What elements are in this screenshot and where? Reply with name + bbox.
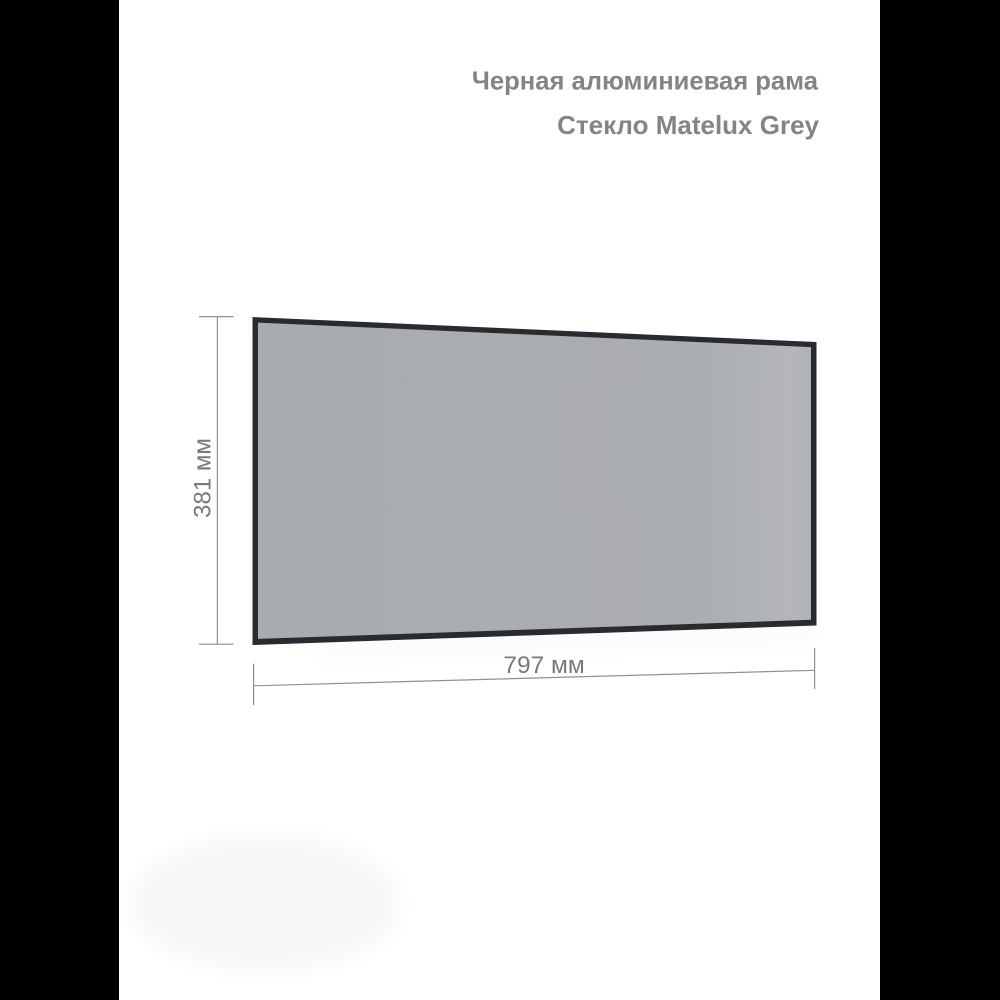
svg-text:381 мм: 381 мм — [190, 438, 217, 518]
svg-text:Черная алюминиевая рама: Черная алюминиевая рама — [472, 68, 819, 96]
svg-text:Стекло Matelux Grey: Стекло Matelux Grey — [557, 110, 819, 140]
svg-text:797 мм: 797 мм — [503, 652, 584, 679]
